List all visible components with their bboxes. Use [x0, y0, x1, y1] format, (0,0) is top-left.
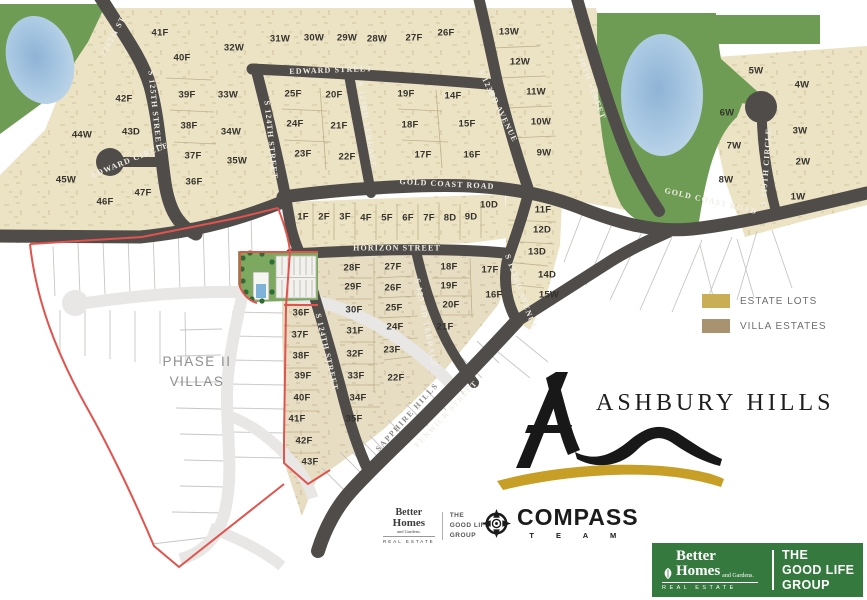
- compass-wordmark: COMPASS T E A M: [517, 506, 639, 540]
- villa-estates-swatch: [702, 319, 730, 333]
- villa-estates-label: VILLA ESTATES: [740, 321, 827, 332]
- estate-lots-swatch: [702, 294, 730, 308]
- footer-rule: [662, 582, 758, 583]
- footer-goodlife: GOOD LIFE: [782, 563, 854, 578]
- legend-row-estate: ESTATE LOTS: [702, 294, 827, 308]
- footer-homes-row: Homes and Gardens.: [662, 563, 764, 580]
- bhg-goodlife-small-logo: Better Homes and Gardens. REAL ESTATE TH…: [383, 508, 490, 544]
- footer-divider: [772, 550, 774, 590]
- compass-rose-icon: [481, 508, 512, 539]
- ashbury-hills-title: ASHBURY HILLS: [596, 390, 834, 417]
- pond-east: [621, 34, 703, 156]
- bhg-small-realestate: REAL ESTATE: [383, 536, 435, 544]
- compass-team: T E A M: [517, 531, 639, 540]
- compass-team-logo: COMPASS T E A M: [481, 506, 639, 540]
- bhg-small-divider: [442, 512, 443, 540]
- footer-better: Better: [676, 549, 764, 564]
- plat-map: 41F40F42F43D44W45W46F47F39F38F37F36F32W3…: [0, 0, 867, 600]
- footer-goodlife-group: THE GOOD LIFE GROUP: [782, 548, 854, 593]
- amenity-area: [238, 250, 318, 303]
- footer-group: GROUP: [782, 578, 854, 593]
- phase2-villas-label: PHASE II VILLAS: [162, 352, 231, 393]
- pool: [256, 284, 266, 298]
- bhg-small-gardens: and Gardens.: [383, 529, 435, 534]
- compass-name: COMPASS: [517, 506, 639, 529]
- gold-swoosh: [497, 465, 724, 490]
- footer-gardens: and Gardens.: [722, 573, 754, 580]
- footer-the: THE: [782, 548, 854, 563]
- phase2-line2: VILLAS: [162, 372, 231, 392]
- estate-lots-label: ESTATE LOTS: [740, 296, 817, 307]
- leaf-icon: [662, 567, 674, 580]
- legend: ESTATE LOTS VILLA ESTATES: [702, 294, 827, 344]
- bhg-small-wordmark: Better Homes and Gardens. REAL ESTATE: [383, 508, 442, 544]
- phase2-line1: PHASE II: [162, 352, 231, 372]
- footer-realestate: REAL ESTATE: [662, 585, 764, 591]
- legend-row-villa: VILLA ESTATES: [702, 319, 827, 333]
- bhg-small-homes: Homes: [383, 518, 435, 529]
- footer-banner: Better Homes and Gardens. REAL ESTATE TH…: [652, 543, 863, 597]
- footer-homes: Homes: [676, 563, 720, 580]
- footer-bhg-wordmark: Better Homes and Gardens. REAL ESTATE: [652, 549, 764, 591]
